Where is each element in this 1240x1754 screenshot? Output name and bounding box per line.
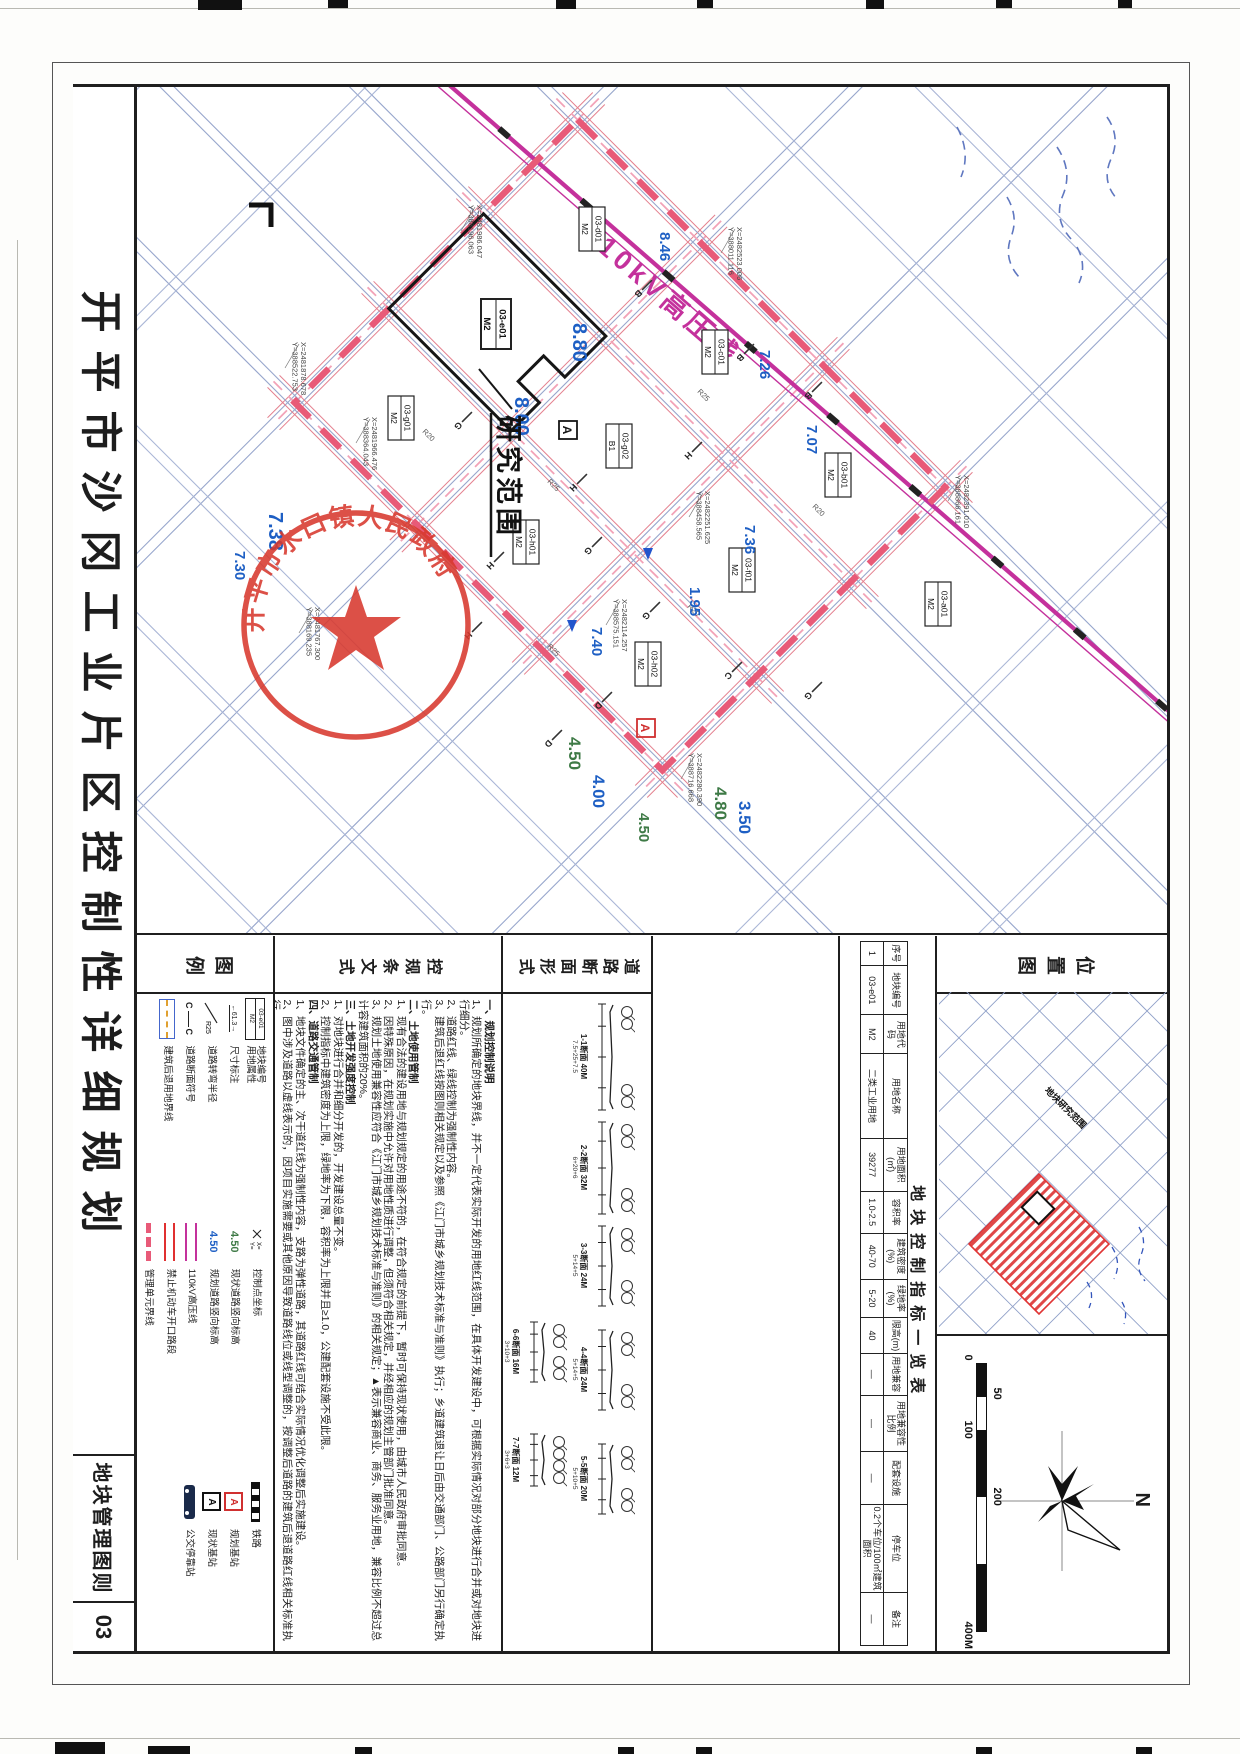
legend-title: 图例: [137, 936, 273, 994]
road-grid: [137, 87, 1167, 933]
road-elevation: 7.07: [803, 425, 820, 454]
road-elevation: 4.50: [635, 813, 652, 842]
road-section: 4-4断面 24M5+14+5: [571, 1328, 635, 1412]
provision-item: 2、道路红线、绿线控制为强制性内容。: [445, 1000, 458, 1642]
provision-item: 1、规划所确定的地块界线，并不一定代表实际开发的用地红线范围，在具体开发建设中，…: [457, 1000, 482, 1642]
svg-text:03-d01: 03-d01: [594, 216, 604, 243]
svg-text:Y=388522.753: Y=388522.753: [291, 342, 300, 391]
svg-text:X=2481966.476: X=2481966.476: [370, 417, 379, 470]
svg-text:Y=388011.116: Y=388011.116: [727, 227, 736, 275]
svg-text:X=2482251.625: X=2482251.625: [703, 491, 712, 544]
indicator-header: 限高(m): [884, 1318, 908, 1353]
svg-text:M2: M2: [389, 412, 399, 424]
scale-and-north: N 050100200400M: [937, 1336, 1167, 1652]
road-elevation: 7.26: [756, 350, 773, 379]
road-section: 1-1断面 40M7.5+25+7.5: [571, 1002, 635, 1112]
legend-item-label: 控制点坐标: [251, 1269, 261, 1317]
provision-item: 1、现有合法的建设用地与规划规定的用途不符的，在符合规定的前提下，暂时可保持现状…: [394, 1000, 407, 1642]
chainage-tick: G: [452, 409, 475, 432]
scale-bar: [976, 1363, 987, 1632]
legend-item: 03-e01M2地块编号用地属性: [246, 998, 265, 1221]
legend-item-label: 现状道路竖向标高: [229, 1269, 239, 1345]
provision-item: 3、建筑后退红线按图则相关规定以及参照《江门市城乡规划技术标准与准则》执行；乡道…: [419, 1000, 444, 1642]
legend-group: X=Y=控制点坐标4.50现状道路竖向标高4.50规划道路竖向标高110kV高压…: [139, 1221, 265, 1481]
svg-text:M2: M2: [926, 598, 936, 610]
sheet-inner-frame: 110kV高压线 X=2482523.006Y=388011.116X=2481…: [73, 84, 1170, 1654]
plot-label: 03-d01M2: [579, 207, 605, 251]
government-seal: 开平市水口镇人民政府: [240, 502, 468, 737]
drawing-title: 开平市沙冈工业片区控制性详细规划: [73, 87, 134, 1454]
indicator-header: 容积率: [884, 1191, 908, 1233]
indicator-value: 1.0-2.5: [860, 1191, 884, 1233]
svg-text:Y=388196.063: Y=388196.063: [467, 205, 476, 254]
indicator-value: 0.2个车位/100㎡建筑面积: [860, 1505, 884, 1593]
coordinate-label: X=2481878.678Y=388522.753: [285, 342, 308, 395]
svg-text:Y=388169.235: Y=388169.235: [305, 607, 314, 656]
provision-item: 2、因特殊原因，在规划实施中允许对用地性质进行调整，但须符合相关规定，并经相应的…: [382, 1000, 395, 1642]
chainage-tick: H: [485, 549, 508, 572]
chainage-tick: G: [582, 534, 605, 557]
empty-panel: [651, 936, 838, 1652]
svg-text:R25: R25: [205, 1021, 212, 1034]
legend-item-label: 规划基站: [229, 1529, 239, 1567]
chainage-tick: H: [568, 471, 591, 494]
legend-item: A现状基站: [202, 1481, 221, 1647]
svg-text:03-e01: 03-e01: [497, 309, 508, 339]
indicator-value: M2: [860, 1015, 884, 1054]
svg-text:B1: B1: [607, 441, 617, 452]
road-sections-title: 道路断面形式: [503, 936, 651, 994]
sheet-label: 地块管理图则: [73, 1454, 134, 1601]
legend-item-label: 铁路: [251, 1529, 261, 1548]
legend-item-label: 现状基站: [207, 1529, 217, 1567]
legend-item: A规划基站: [224, 1481, 243, 1647]
indicator-header: 用地代码: [884, 1015, 908, 1054]
indicator-header: 序号: [884, 941, 908, 966]
provision-item: 3、规划土地使用兼容性应符合《江门市城乡规划技术标准与准则》的相关规定；▲表示兼…: [356, 1000, 381, 1642]
indicator-header: 建筑密度(%): [884, 1233, 908, 1279]
indicator-value: —: [860, 1593, 884, 1646]
legend-items: 03-e01M2地块编号用地属性←61.3→尺寸标注R25道路转弯半径CC道路断…: [139, 998, 265, 1648]
legend-item: ←61.3→尺寸标注: [224, 998, 243, 1221]
plot-label: 03-g01M2: [388, 396, 414, 440]
road-elevation: 7.40: [588, 627, 605, 656]
indicator-value: —: [860, 1395, 884, 1451]
coordinate-label: X=2481966.476Y=388364.043: [356, 417, 379, 470]
turning-radius-label: R20: [421, 427, 437, 443]
legend-item: 管理单元界线: [139, 1221, 158, 1481]
indicator-value: 二类工业用地: [860, 1054, 884, 1139]
indicators-panel: 地块控制指标一览表 序号地块编号用地代码用地名称用地面积(㎡)容积率建筑密度(%…: [838, 936, 935, 1652]
plot-label: 03-f01M2: [729, 548, 755, 592]
chainage-tick: B: [802, 379, 825, 402]
svg-text:03-a01: 03-a01: [940, 591, 950, 618]
road-elevation: 4.00: [589, 775, 608, 808]
provisions-title: 控规条文式: [275, 936, 501, 994]
svg-text:X=2482391.010: X=2482391.010: [962, 475, 971, 528]
sheet-number: 03: [73, 1601, 134, 1651]
indicator-value: 5-20: [860, 1279, 884, 1318]
plot-label: 03-e01M2: [481, 299, 511, 349]
location-panel: 位置图: [935, 936, 1167, 1652]
svg-text:03-g01: 03-g01: [403, 405, 413, 432]
location-minimap: 地块研究范围: [937, 992, 1167, 1336]
title-bar: 开平市沙冈工业片区控制性详细规划 地块管理图则 03: [73, 87, 137, 1651]
road-section: 6-6断面 16M3+10+3: [503, 1320, 567, 1384]
indicator-header: 停车位: [884, 1505, 908, 1593]
legend-item: 110kV高压线: [182, 1221, 201, 1481]
provision-heading: 四、道路交通管制: [306, 1000, 319, 1642]
indicator-header: 地块编号: [884, 966, 908, 1015]
svg-text:X=: X=: [255, 1242, 261, 1250]
svg-text:M2: M2: [826, 469, 836, 481]
svg-text:X=2481767.300: X=2481767.300: [313, 607, 322, 660]
svg-text:X=2481878.678: X=2481878.678: [299, 342, 308, 395]
provision-heading: 一、规划控制说明: [482, 1000, 495, 1642]
svg-text:Y=: Y=: [248, 1242, 254, 1250]
indicator-value: 40: [860, 1318, 884, 1353]
coordinate-label: X=2482523.006Y=388011.116: [721, 227, 744, 280]
coordinate-label: X=2482114.257Y=388575.151: [606, 599, 629, 652]
road-elevation: 7.30: [231, 551, 248, 580]
provisions-panel: 控规条文式 一、规划控制说明1、规划所确定的地块界线，并不一定代表实际开发的用地…: [273, 936, 501, 1652]
plan-sheet: 110kV高压线 X=2482523.006Y=388011.116X=2481…: [0, 0, 1240, 1754]
north-arrow-icon: [992, 1426, 1142, 1576]
indicator-value: —: [860, 1353, 884, 1395]
legend-item: R25道路转弯半径: [202, 998, 221, 1221]
svg-text:X=2482114.257: X=2482114.257: [620, 599, 629, 652]
indicator-header: 用地兼容: [884, 1353, 908, 1395]
legend-item: 建筑后退用地界线: [158, 998, 177, 1221]
road-sections-panel: 道路断面形式 1-1断面 40M7.5+25+7.52-2断面 32M6+20+…: [501, 936, 651, 1652]
plan-map-drawing: 110kV高压线 X=2482523.006Y=388011.116X=2481…: [137, 87, 1167, 933]
legend-item-label: 禁止机动车开口路段: [165, 1269, 175, 1355]
plot-label: 03-a01M2: [925, 582, 951, 626]
svg-text:03-h01: 03-h01: [528, 529, 538, 556]
provision-item: 1、对地块进行合并和细分开发的，开发建设总量不变。: [331, 1000, 344, 1642]
road-elevation: 3.50: [735, 801, 754, 834]
svg-text:Y=388575.151: Y=388575.151: [612, 599, 621, 648]
chainage-tick: H: [683, 439, 706, 462]
svg-text:研究范围: 研究范围: [493, 415, 524, 539]
indicator-header: 绿地率(%): [884, 1279, 908, 1318]
svg-text:M2: M2: [636, 658, 646, 670]
svg-text:Y=388716.668: Y=388716.668: [687, 753, 696, 802]
chainage-tick: D: [542, 727, 565, 750]
indicator-header: 备注: [884, 1593, 908, 1646]
provision-item: 2、控制指标中建筑密度为上限，绿地率为下限，容积率为上限并且≥1.0，公建配套设…: [319, 1000, 332, 1642]
coordinate-label: X=2482251.625Y=388458.565: [689, 491, 712, 544]
indicators-table: 序号地块编号用地代码用地名称用地面积(㎡)容积率建筑密度(%)绿地率(%)限高(…: [860, 941, 908, 1647]
plot-label: 03-c01M2: [702, 330, 728, 374]
indicator-value: —: [860, 1452, 884, 1505]
svg-text:X=2482523.006: X=2482523.006: [735, 227, 744, 280]
survey-corner-mark: [249, 203, 273, 227]
indicators-title: 地块控制指标一览表: [907, 936, 931, 1652]
legend-group: 03-e01M2地块编号用地属性←61.3→尺寸标注R25道路转弯半径CC道路断…: [139, 998, 265, 1221]
svg-text:M2: M2: [703, 346, 713, 358]
legend-item-label: 道路转弯半径: [207, 1046, 217, 1103]
svg-text:M2: M2: [481, 317, 492, 330]
indicator-header: 配套设施: [884, 1452, 908, 1505]
legend-item: 公交停靠站: [180, 1481, 199, 1647]
svg-text:Y=388364.043: Y=388364.043: [362, 417, 371, 466]
legend-item-label: 建筑后退用地界线: [163, 1046, 173, 1122]
legend-group: 铁路A规划基站A现状基站公交停靠站: [139, 1481, 265, 1647]
legend-panel: 图例 03-e01M2地块编号用地属性←61.3→尺寸标注R25道路转弯半径CC…: [137, 936, 273, 1652]
road-section: 7-7断面 12M3+6+3: [503, 1432, 567, 1488]
legend-item-label: 地块编号用地属性: [246, 1046, 266, 1084]
plot-label: 03-b01M2: [825, 453, 851, 497]
svg-text:Y=388458.565: Y=388458.565: [695, 491, 704, 540]
svg-text:M2: M2: [730, 564, 740, 576]
indicator-value: 40-70: [860, 1233, 884, 1279]
chainage-tick: G: [640, 599, 663, 622]
svg-text:03-f01: 03-f01: [744, 558, 754, 582]
indicator-header: 用地名称: [884, 1054, 908, 1139]
indicator-value: 03-e01: [860, 966, 884, 1015]
road-section: 3-3断面 24M5+14+5: [571, 1224, 635, 1308]
road-elevation: 1.95: [686, 587, 703, 616]
plot-label: 03-g02B1: [606, 424, 632, 468]
legend-item-label: 道路断面符号: [185, 1046, 195, 1103]
legend-item: X=Y=控制点坐标: [247, 1221, 266, 1481]
indicator-header: 用地面积(㎡): [884, 1138, 908, 1191]
existing-bts-icon: A: [560, 426, 574, 435]
provision-item: 1、地块文件确定的主、次干道红线为强制性内容，支路为弹性道路，其道路红线可结合实…: [294, 1000, 307, 1642]
legend-item-label: 规划道路竖向标高: [208, 1269, 218, 1345]
master-plan-map: 110kV高压线 X=2482523.006Y=388011.116X=2481…: [137, 87, 1167, 935]
legend-item: 禁止机动车开口路段: [161, 1221, 180, 1481]
legend-item: 4.50规划道路竖向标高: [204, 1221, 223, 1481]
provisions-text: 一、规划控制说明1、规划所确定的地块界线，并不一定代表实际开发的用地红线范围，在…: [279, 1000, 495, 1642]
legend-item-label: 110kV高压线: [186, 1269, 196, 1324]
svg-text:03-c01: 03-c01: [717, 339, 727, 365]
road-elevation: 8.80: [568, 323, 590, 362]
planned-bts-icon: A: [638, 724, 652, 733]
chainage-tick: G: [802, 679, 825, 702]
indicator-header: 用地兼容性比例: [884, 1395, 908, 1451]
provision-heading: 三、土地开发强度控制: [344, 1000, 357, 1642]
svg-text:03-b01: 03-b01: [840, 462, 850, 489]
scanned-plan-page: 110kV高压线 X=2482523.006Y=388011.116X=2481…: [0, 0, 1240, 1754]
road-section: 5-5断面 20M5+10+5: [571, 1442, 635, 1516]
plot-label: 03-h02M2: [635, 642, 661, 686]
indicator-value: 39277: [860, 1138, 884, 1191]
coordinate-label: X=2481767.300Y=388169.235: [299, 607, 322, 660]
turning-radius-label: R20: [811, 502, 827, 518]
road-section: 2-2断面 32M6+20+6: [571, 1120, 635, 1216]
road-elevation: 4.50: [565, 737, 584, 770]
road-elevation: 7.36: [741, 525, 758, 554]
svg-text:X=2482280.390: X=2482280.390: [695, 753, 704, 806]
turning-radius-label: R25: [696, 387, 712, 403]
provision-item: 2、图中涉及道路以虚线表示的，因项目实施需要或其他原因导致道路线位或线型调整的，…: [273, 1000, 294, 1642]
provision-heading: 二、土地使用管制: [407, 1000, 420, 1642]
location-panel-title: 位置图: [937, 936, 1167, 994]
legend-item: 铁路: [246, 1481, 265, 1647]
legend-item: 4.50现状道路竖向标高: [225, 1221, 244, 1481]
road-elevation: 4.80: [711, 787, 730, 820]
svg-text:X=2481986.047: X=2481986.047: [475, 205, 484, 258]
indicator-value: 1: [860, 941, 884, 966]
svg-text:M2: M2: [580, 223, 590, 235]
road-elevation: 8.46: [656, 232, 673, 261]
legend-item-label: 尺寸标注: [229, 1046, 239, 1084]
svg-text:03-h02: 03-h02: [650, 651, 660, 678]
legend-item-label: 公交停靠站: [185, 1529, 195, 1577]
legend-item: CC道路断面符号: [180, 998, 199, 1221]
legend-item-label: 管理单元界线: [143, 1269, 153, 1326]
svg-text:Y=388866.161: Y=388866.161: [954, 475, 963, 524]
svg-text:03-g02: 03-g02: [621, 433, 631, 460]
